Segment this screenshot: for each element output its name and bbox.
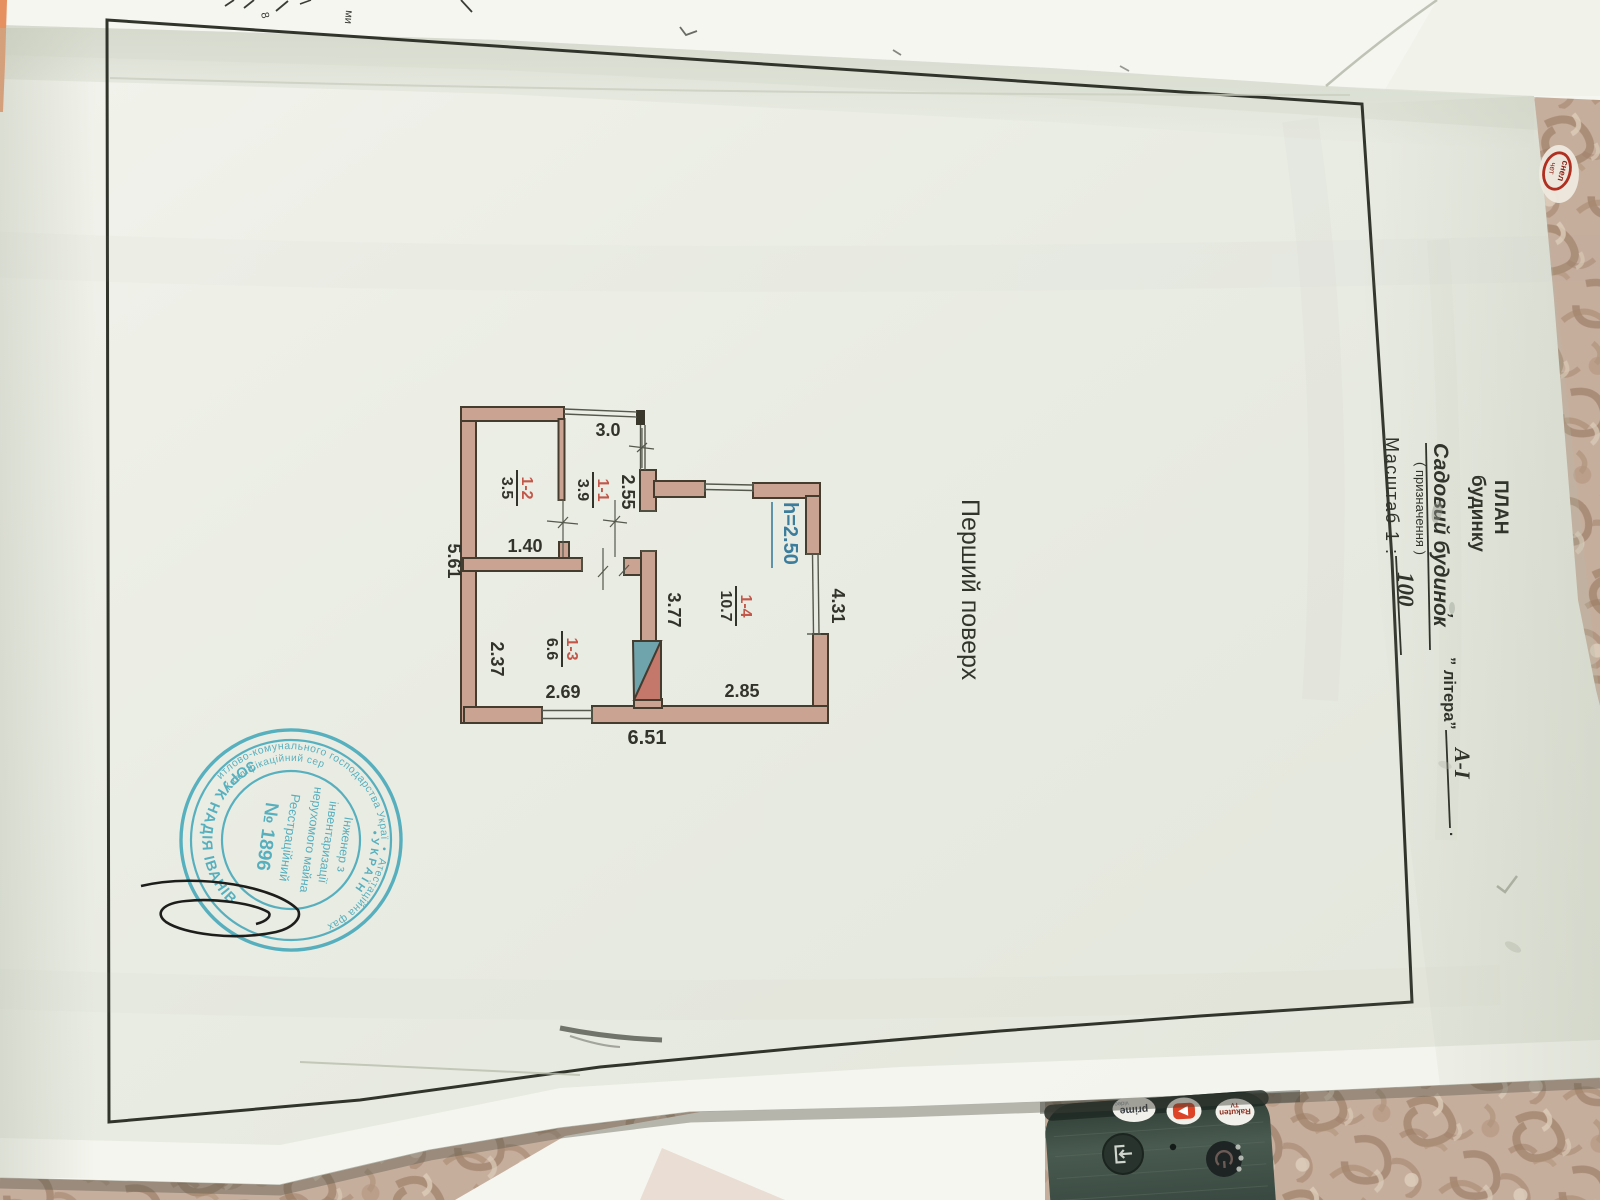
svg-text:А-І: А-І bbox=[1450, 746, 1475, 780]
svg-text:Масштаб 1 :: Масштаб 1 : bbox=[1382, 437, 1402, 556]
svg-text:( призначення ): ( призначення ) bbox=[1413, 462, 1428, 555]
svg-text:ПЛАН: ПЛАН bbox=[1490, 480, 1511, 534]
svg-text:будинку: будинку bbox=[1467, 475, 1488, 552]
svg-text:2.37: 2.37 bbox=[487, 641, 507, 676]
svg-text:2.55: 2.55 bbox=[618, 474, 638, 509]
svg-text:6.6: 6.6 bbox=[543, 638, 560, 660]
svg-text:.: . bbox=[1446, 832, 1463, 836]
svg-text:10.7: 10.7 bbox=[717, 590, 734, 621]
svg-text:1-1: 1-1 bbox=[594, 478, 611, 501]
svg-text:1-3: 1-3 bbox=[563, 637, 580, 660]
svg-text:ми: ми bbox=[342, 10, 355, 25]
svg-text:3.77: 3.77 bbox=[664, 592, 684, 627]
svg-text:3.9: 3.9 bbox=[574, 479, 591, 501]
svg-text:5.61: 5.61 bbox=[444, 543, 464, 578]
svg-text:6.51: 6.51 bbox=[628, 727, 667, 749]
svg-text:1-2: 1-2 bbox=[518, 476, 535, 499]
svg-text:3.0: 3.0 bbox=[595, 420, 620, 440]
svg-text:Садовий будинок: Садовий будинок bbox=[1429, 443, 1452, 628]
svg-text:2.69: 2.69 bbox=[545, 682, 580, 702]
svg-text:4.31: 4.31 bbox=[828, 588, 848, 623]
svg-text:2.85: 2.85 bbox=[724, 681, 759, 701]
svg-text:1.40: 1.40 bbox=[507, 536, 542, 556]
svg-text:1-4: 1-4 bbox=[737, 594, 754, 617]
svg-text:Перший поверх: Перший поверх bbox=[956, 499, 984, 681]
svg-text:” літера”: ” літера” bbox=[1440, 657, 1458, 730]
svg-text:3.5: 3.5 bbox=[498, 477, 515, 499]
svg-text:h=2.50: h=2.50 bbox=[779, 502, 801, 565]
